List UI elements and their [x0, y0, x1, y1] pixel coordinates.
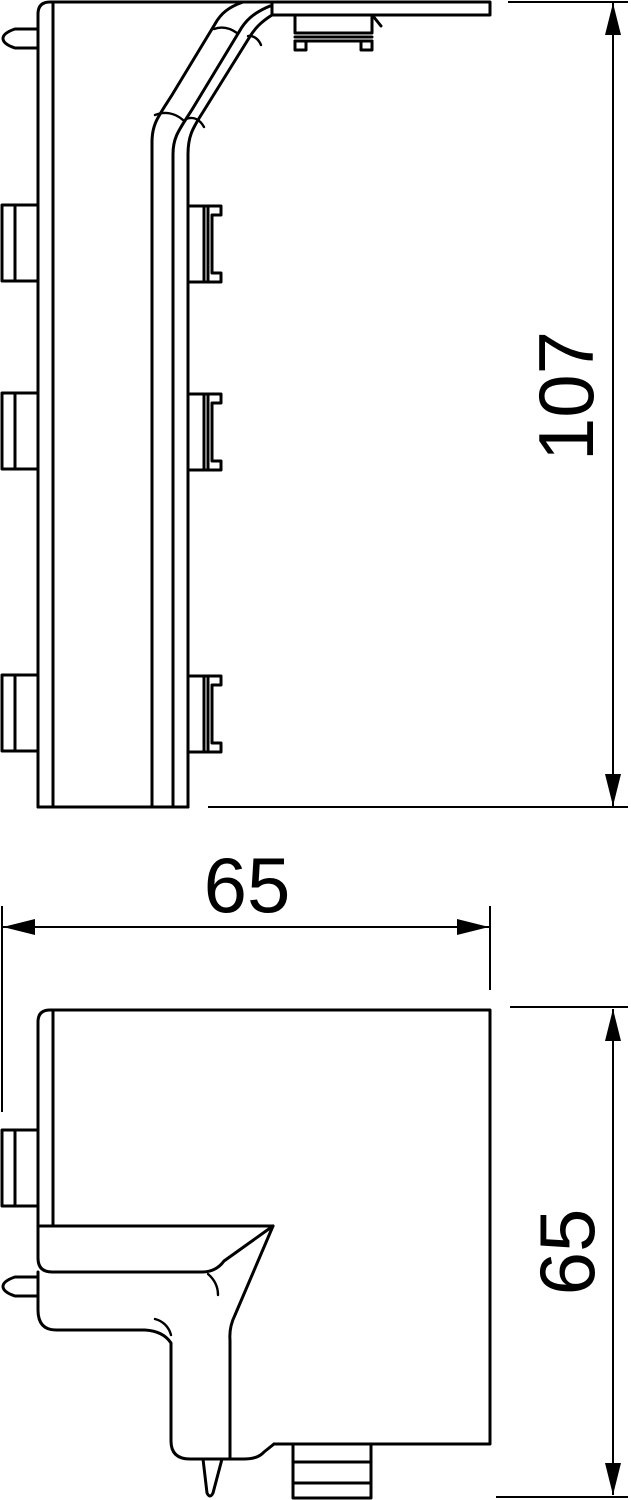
- plan-view: [2, 1010, 490, 1498]
- dim-arrow-left-icon: [3, 919, 35, 935]
- dim-arrow-depth-up-icon: [605, 1009, 621, 1041]
- dim-arrow-down-icon: [605, 774, 621, 806]
- top-bar-clip: [295, 15, 381, 50]
- plan-left-clip: [2, 1130, 37, 1206]
- drawing-svg: 107 65: [0, 0, 631, 1500]
- dim-arrow-up-icon: [605, 3, 621, 35]
- side-elevation-view: [2, 2, 490, 807]
- technical-drawing-canvas: 107 65: [0, 0, 631, 1500]
- plan-bottom-clip: [293, 1444, 371, 1498]
- plan-spike-bottom: [203, 1459, 222, 1496]
- plan-corner-seam: [230, 1226, 273, 1459]
- plan-spike-left: [3, 1277, 38, 1296]
- dimension-label-depth: 65: [523, 1209, 611, 1296]
- dimension-label-height: 107: [522, 331, 610, 461]
- dim-arrow-right-icon: [457, 919, 489, 935]
- dimension-depth-65: 65: [496, 1007, 628, 1497]
- plan-corner-contour-lower: [38, 1272, 274, 1459]
- dimension-label-width: 65: [204, 841, 291, 929]
- plan-corner-contour-outer: [38, 1226, 273, 1272]
- side-spike-left: [3, 29, 38, 48]
- dimension-width-65: 65: [2, 841, 490, 1112]
- side-right-clips: [190, 206, 221, 752]
- dim-arrow-depth-down-icon: [605, 1463, 621, 1495]
- wall-roof-bar-outline: [38, 2, 490, 807]
- dimension-height-107: 107: [208, 2, 628, 807]
- side-left-clips: [2, 205, 37, 751]
